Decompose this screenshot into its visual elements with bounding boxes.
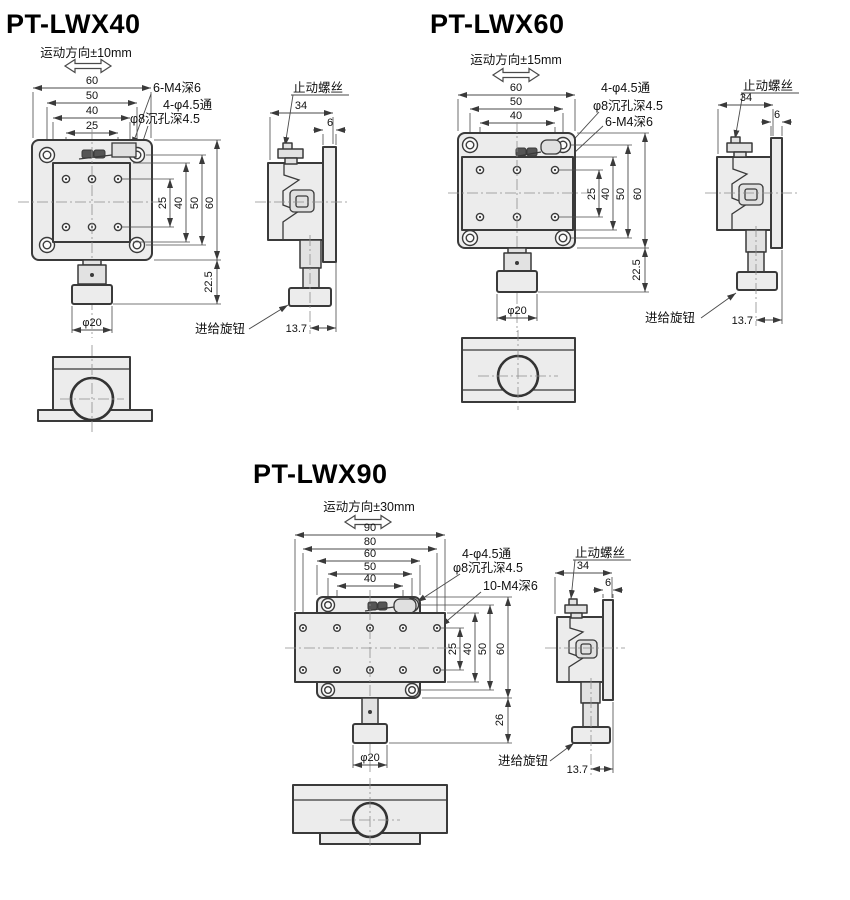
dim-height: 22.5 <box>631 259 643 280</box>
limit-stop-block <box>541 140 561 154</box>
callout-counterbore: φ8沉孔深4.5 <box>453 561 523 575</box>
stop-screw-tab <box>368 602 377 610</box>
dim-40: 40 <box>86 105 98 117</box>
dim-side-width: 34 <box>577 560 589 572</box>
feed-knob-label: 进给旋钮 <box>645 310 695 325</box>
dim-50: 50 <box>86 90 98 102</box>
bottom-view <box>293 778 447 849</box>
panel-pt-lwx90: PT-LWX90 运动方向±30mm 90 80 60 50 40 4-φ4.5… <box>253 459 631 849</box>
callout-m4: 6-M4深6 <box>153 81 201 95</box>
dim-40: 40 <box>364 573 376 585</box>
callout-through-hole: 4-φ4.5通 <box>601 81 651 95</box>
dim-25v: 25 <box>157 197 169 209</box>
stop-screw-label: 止动螺丝 <box>743 79 793 93</box>
feed-knob-front: φ20 <box>497 248 537 321</box>
side-view: 止动螺丝 34 6 13.7 进给旋钮 <box>645 79 799 327</box>
stop-screw-cap <box>565 605 587 613</box>
dim-knob-dia: φ20 <box>360 752 379 764</box>
dim-50v: 50 <box>189 197 201 209</box>
front-view <box>285 590 460 772</box>
dim-60: 60 <box>510 82 522 94</box>
panel-pt-lwx40: PT-LWX40 运动方向±10mm 60 50 40 25 6-M4深6 4-… <box>6 9 350 433</box>
dim-flange: 6 <box>605 577 611 589</box>
callout-counterbore: φ8沉孔深4.5 <box>593 99 663 113</box>
dim-height: 26 <box>494 714 506 726</box>
travel-direction-label: 运动方向±10mm <box>40 45 132 60</box>
knob-side <box>737 272 777 290</box>
feed-knob-front: φ20 <box>353 698 387 768</box>
front-view <box>448 122 588 332</box>
stop-screw-tab <box>82 150 93 158</box>
feed-knob-label: 进给旋钮 <box>195 321 245 336</box>
feed-knob-label: 进给旋钮 <box>498 753 548 768</box>
drawing-canvas: PT-LWX40 运动方向±10mm 60 50 40 25 6-M4深6 4-… <box>0 0 850 900</box>
front-view <box>18 128 165 338</box>
dim-50v: 50 <box>615 188 627 200</box>
knob <box>353 724 387 743</box>
dim-40v: 40 <box>173 197 185 209</box>
mount-flange <box>323 147 336 262</box>
dim-60v: 60 <box>632 188 644 200</box>
dim-40v: 40 <box>600 188 612 200</box>
dim-knob-offset: 13.7 <box>567 764 588 776</box>
dim-60v: 60 <box>495 643 507 655</box>
dim-25v: 25 <box>447 643 459 655</box>
side-view: 止动螺丝 34 6 13.7 进给旋钮 <box>195 81 350 336</box>
double-arrow-icon <box>493 69 539 82</box>
travel-direction-label: 运动方向±15mm <box>470 52 562 67</box>
callout-m4: 10-M4深6 <box>483 579 538 593</box>
dim-60: 60 <box>86 75 98 87</box>
panel-pt-lwx60: PT-LWX60 运动方向±15mm 60 50 40 4-φ4.5通 φ8沉孔… <box>430 9 799 410</box>
dim-90: 90 <box>364 522 376 534</box>
travel-direction-label: 运动方向±30mm <box>323 499 415 514</box>
dim-knob-offset: 13.7 <box>286 323 307 335</box>
dim-height: 22.5 <box>203 271 215 292</box>
dim-60v: 60 <box>204 197 216 209</box>
bottom-view <box>462 330 575 410</box>
knob <box>497 271 537 292</box>
callout-through-hole: 4-φ4.5通 <box>163 98 213 112</box>
stop-screw-cap <box>278 149 303 158</box>
limit-stop-block <box>394 599 416 613</box>
model-title: PT-LWX60 <box>430 9 565 39</box>
limit-stop-block <box>112 143 136 157</box>
stop-screw-label: 止动螺丝 <box>575 546 625 560</box>
dim-40v: 40 <box>462 643 474 655</box>
dim-25v: 25 <box>586 188 598 200</box>
dim-80: 80 <box>364 536 376 548</box>
technical-drawing: PT-LWX40 运动方向±10mm 60 50 40 25 6-M4深6 4-… <box>0 0 850 900</box>
dim-side-width: 34 <box>295 100 307 112</box>
callout-m4: 6-M4深6 <box>605 115 653 129</box>
feed-knob-front: φ20 <box>72 260 112 333</box>
double-arrow-icon <box>65 60 111 73</box>
dim-60: 60 <box>364 548 376 560</box>
stop-screw-label: 止动螺丝 <box>293 81 343 95</box>
model-title: PT-LWX40 <box>6 9 141 39</box>
bottom-view <box>38 345 152 433</box>
callout-counterbore: φ8沉孔深4.5 <box>130 112 200 126</box>
dim-50: 50 <box>364 561 376 573</box>
dim-40: 40 <box>510 110 522 122</box>
dim-50: 50 <box>510 96 522 108</box>
knob <box>72 285 112 304</box>
dim-side-width: 34 <box>740 92 752 104</box>
model-title: PT-LWX90 <box>253 459 388 489</box>
dim-knob-offset: 13.7 <box>732 315 753 327</box>
dim-flange: 6 <box>327 117 333 129</box>
stop-screw-cap <box>727 143 752 152</box>
callout-through-hole: 4-φ4.5通 <box>462 547 512 561</box>
dim-flange: 6 <box>774 109 780 121</box>
mount-flange <box>603 600 613 700</box>
dim-50v: 50 <box>477 643 489 655</box>
dim-knob-dia: φ20 <box>82 317 101 329</box>
dim-knob-dia: φ20 <box>507 305 526 317</box>
